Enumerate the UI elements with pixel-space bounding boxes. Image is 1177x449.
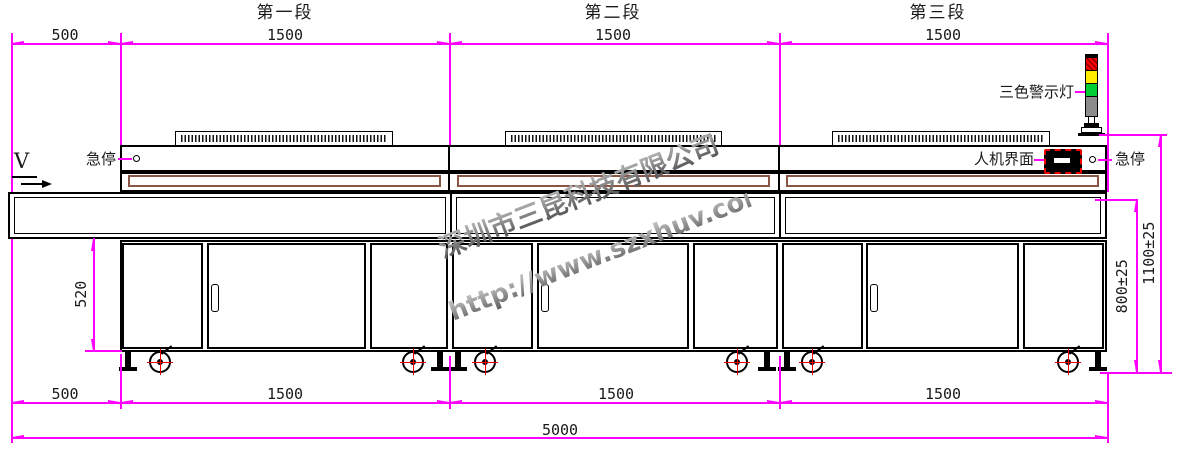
- overall-height-dim-line: [1160, 134, 1162, 373]
- leader-line: [1098, 159, 1112, 161]
- dim-arrow: [121, 41, 133, 45]
- section-2-title: 第二段: [568, 4, 658, 23]
- dim-arrow: [437, 400, 449, 404]
- uv-chamber-liner-3: [786, 175, 1099, 187]
- section-3-title: 第三段: [893, 4, 983, 23]
- dim-arrow: [12, 400, 24, 404]
- conveyor-belt-3: [785, 197, 1101, 234]
- leveling-foot: [758, 352, 776, 372]
- foot-base: [119, 367, 137, 371]
- estop-label-right: 急停: [1115, 151, 1159, 168]
- foot-stem: [764, 352, 770, 367]
- dim-arrow: [767, 400, 779, 404]
- estop-label-left: 急停: [76, 151, 116, 168]
- cabinet-panel: [693, 243, 778, 349]
- foot-base: [778, 367, 796, 371]
- heatsink-fins: [838, 135, 1044, 142]
- leveling-foot: [431, 352, 449, 372]
- heatsink-fins: [181, 135, 387, 142]
- direction-arrowhead: [42, 180, 56, 188]
- foot-stem: [437, 352, 443, 367]
- conveyor-belt-1: [14, 197, 446, 234]
- dim-arrow: [780, 41, 792, 45]
- direction-v-label: V: [14, 150, 29, 173]
- bottom-dim-500-label: 500: [35, 386, 95, 403]
- tower-light-label: 三色警示灯: [990, 84, 1074, 101]
- leveling-foot: [1089, 352, 1107, 372]
- extension-line: [120, 33, 122, 145]
- section-divider: [448, 172, 450, 192]
- top-dim-line: [11, 43, 1107, 45]
- overall-height-label: 1100±25: [1141, 213, 1158, 293]
- tower-green-light: [1085, 83, 1098, 97]
- dim-arrow: [108, 41, 120, 45]
- tower-pole: [1085, 96, 1098, 117]
- dim-arrow: [1158, 360, 1162, 372]
- cabinet-panel: [782, 243, 863, 349]
- foot-base: [431, 367, 449, 371]
- foot-stem: [1095, 352, 1101, 367]
- top-dim-500-label: 500: [35, 27, 95, 44]
- section-divider: [448, 145, 450, 172]
- top-dim-1500-label-1: 1500: [255, 27, 315, 44]
- section-divider: [778, 145, 780, 172]
- cabinet-door-1: [207, 243, 366, 349]
- total-dim-label: 5000: [530, 422, 590, 439]
- caster-wheel: [402, 351, 424, 373]
- foot-base: [449, 367, 467, 371]
- dim-arrow: [121, 400, 133, 404]
- caster-wheel: [474, 351, 496, 373]
- caster-crosshair: [147, 362, 173, 364]
- cabinet-panel: [1023, 243, 1104, 349]
- direction-arrow: [21, 183, 43, 185]
- bottom-dim-1500-label-3: 1500: [913, 386, 973, 403]
- extension-line: [1107, 33, 1109, 192]
- tower-yellow-light: [1085, 70, 1098, 84]
- belt-height-dim-line: [1136, 199, 1138, 373]
- leveling-foot: [449, 352, 467, 372]
- foot-stem: [784, 352, 790, 367]
- section-1-title: 第一段: [240, 4, 330, 23]
- cabinet-height-label: 520: [73, 269, 90, 319]
- cabinet-panel: [122, 243, 203, 349]
- cabinet-height-dim-line: [93, 238, 95, 351]
- top-dim-1500-label-3: 1500: [913, 27, 973, 44]
- dim-connector: [1099, 134, 1167, 136]
- dim-arrow: [780, 400, 792, 404]
- leveling-foot: [778, 352, 796, 372]
- caster-wheel: [149, 351, 171, 373]
- belt-height-label: 800±25: [1114, 251, 1131, 321]
- hmi-display: [1052, 156, 1072, 165]
- direction-underline: [12, 176, 37, 178]
- bottom-dim-1500-label-1: 1500: [255, 386, 315, 403]
- dim-arrow: [108, 400, 120, 404]
- estop-button-right: [1089, 156, 1096, 163]
- foot-stem: [455, 352, 461, 367]
- cabinet-door-3: [866, 243, 1019, 349]
- foot-base: [758, 367, 776, 371]
- dim-arrow: [1158, 135, 1162, 147]
- dim-arrow: [1095, 400, 1107, 404]
- caster-wheel: [1057, 351, 1079, 373]
- caster-crosshair: [400, 362, 426, 364]
- hmi-label: 人机界面: [964, 151, 1034, 168]
- caster-crosshair: [1055, 362, 1081, 364]
- dim-arrow: [437, 41, 449, 45]
- caster-crosshair: [799, 362, 825, 364]
- dim-arrow: [450, 400, 462, 404]
- door-handle-1: [211, 284, 219, 312]
- leader-line: [118, 158, 132, 160]
- tower-red-light: [1085, 57, 1098, 71]
- estop-button-left: [133, 155, 140, 162]
- foot-base: [1089, 367, 1107, 371]
- dim-connector: [1095, 199, 1138, 201]
- dim-arrow: [1095, 41, 1107, 45]
- bottom-dim-1500-label-2: 1500: [586, 386, 646, 403]
- door-handle-3: [870, 284, 878, 312]
- caster-wheel: [801, 351, 823, 373]
- top-dim-1500-label-2: 1500: [583, 27, 643, 44]
- dim-connector: [85, 350, 122, 352]
- dim-arrow: [767, 41, 779, 45]
- leveling-foot: [119, 352, 137, 372]
- section-divider: [778, 172, 780, 192]
- heatsink-vent-1: [175, 131, 393, 146]
- caster-wheel: [726, 351, 748, 373]
- hmi-screen: [1044, 149, 1082, 174]
- dim-arrow: [1134, 360, 1138, 372]
- dim-arrow: [12, 435, 24, 439]
- dim-arrow: [450, 41, 462, 45]
- dim-arrow: [91, 239, 95, 251]
- engineering-drawing: 第一段 第二段 第三段 500 1500 1500 1500: [0, 0, 1177, 449]
- dim-arrow: [12, 41, 24, 45]
- caster-crosshair: [472, 362, 498, 364]
- dim-arrow: [1095, 435, 1107, 439]
- heatsink-vent-3: [832, 131, 1050, 146]
- foot-stem: [125, 352, 131, 367]
- dim-arrow: [1134, 200, 1138, 212]
- extension-line: [1107, 374, 1109, 443]
- uv-chamber-liner-1: [128, 175, 441, 187]
- caster-crosshair: [724, 362, 750, 364]
